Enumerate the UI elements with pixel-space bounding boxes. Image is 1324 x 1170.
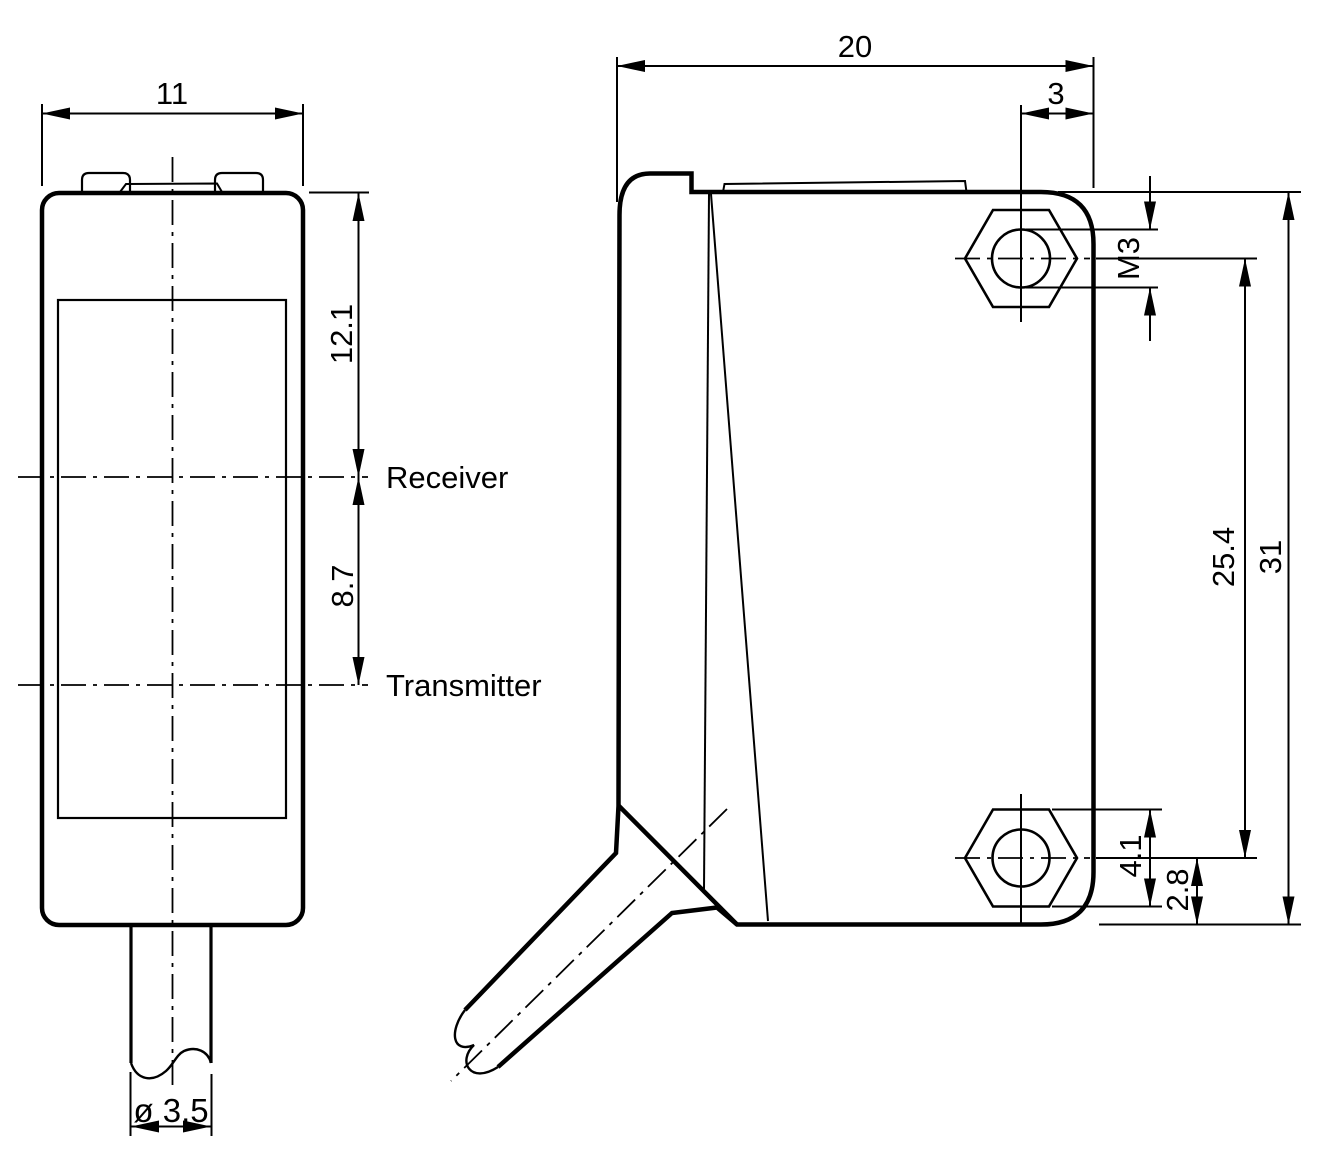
cable <box>131 927 211 1078</box>
dim-hole-bottom-offset: 2.8 <box>1160 858 1197 925</box>
dim-lens-spacing-label: 8.7 <box>325 564 360 607</box>
optical-face-diagonal <box>711 194 768 921</box>
dim-height-label: 31 <box>1253 540 1288 574</box>
dim-nut-flats-label: 4.1 <box>1113 834 1148 877</box>
dimensional-drawing-page: 11 12.1 8.7 Receiver Transmitter ø 3.5 <box>0 0 1324 1170</box>
cable-break-line <box>131 1049 211 1078</box>
top-insert <box>120 184 222 193</box>
chamfer-edge <box>619 806 737 925</box>
dim-receiver-offset: 12.1 <box>309 193 369 478</box>
hex-nut-top <box>955 210 1090 307</box>
mounting-tab-right <box>215 173 263 192</box>
dim-hole-offset-label: 3 <box>1047 76 1064 111</box>
dim-lens-spacing: 8.7 <box>325 477 360 685</box>
dim-hole-spacing-label: 25.4 <box>1206 527 1241 587</box>
dim-cable-diameter: ø 3.5 <box>131 1072 212 1136</box>
dim-cable-diameter-label: ø 3.5 <box>133 1092 208 1129</box>
receiver-label: Receiver <box>386 460 508 495</box>
dim-hole-bottom-offset-label: 2.8 <box>1160 868 1195 911</box>
transmitter-label: Transmitter <box>386 668 542 703</box>
cable-break-line <box>455 1010 498 1073</box>
dim-width-label: 11 <box>156 76 188 111</box>
dimensional-drawing: 11 12.1 8.7 Receiver Transmitter ø 3.5 <box>0 0 1324 1170</box>
cable-axis-line <box>451 809 727 1081</box>
dim-depth: 20 <box>617 29 1094 202</box>
dim-receiver-offset-label: 12.1 <box>324 304 359 364</box>
dim-depth-label: 20 <box>838 29 872 64</box>
side-view: 20 3 M3 25.4 31 <box>451 29 1301 1081</box>
dim-hole-spacing: 25.4 <box>1096 259 1257 859</box>
front-view: 11 12.1 8.7 Receiver Transmitter ø 3.5 <box>18 76 542 1136</box>
optical-face-edge <box>704 194 709 889</box>
hex-nut-bottom <box>955 794 1090 924</box>
